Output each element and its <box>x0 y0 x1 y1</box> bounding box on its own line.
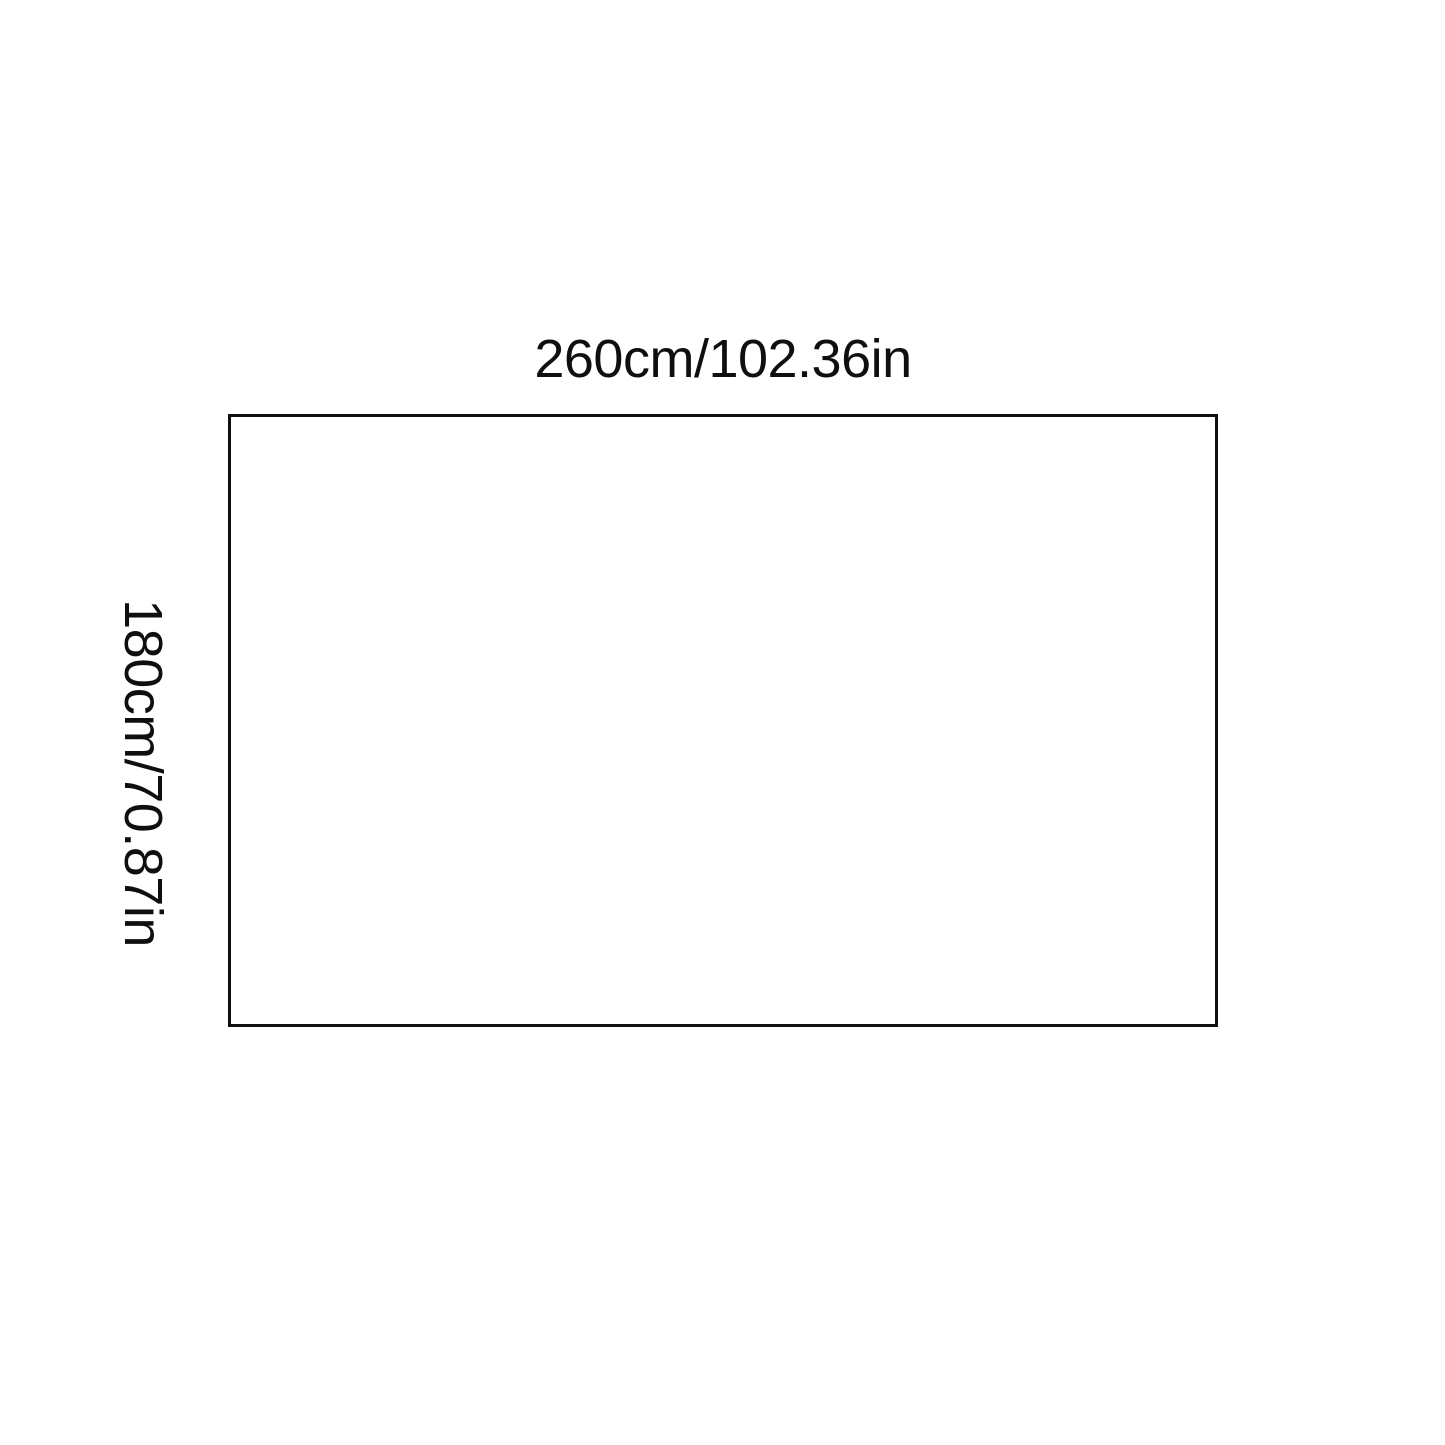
dimension-rectangle <box>228 414 1218 1027</box>
dimension-diagram: 260cm/102.36in 180cm/70.87in <box>0 0 1445 1445</box>
width-dimension-label: 260cm/102.36in <box>534 328 911 390</box>
height-dimension-label: 180cm/70.87in <box>112 599 174 947</box>
